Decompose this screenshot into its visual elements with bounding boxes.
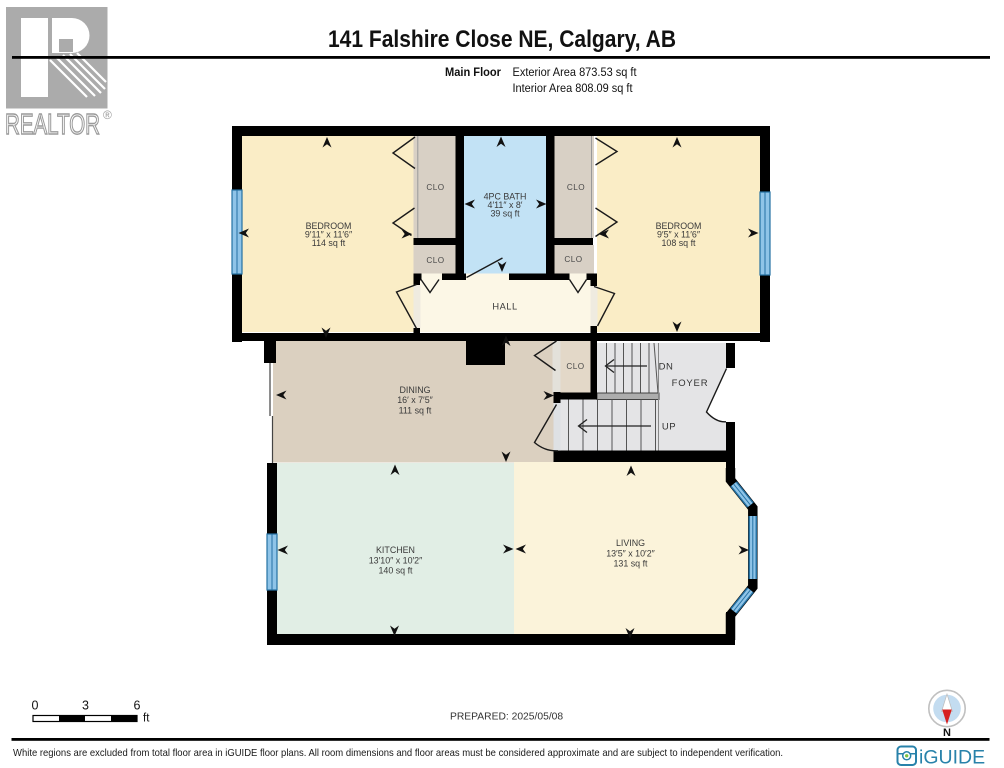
svg-text:KITCHEN: KITCHEN <box>376 545 415 555</box>
svg-text:White regions are excluded fro: White regions are excluded from total fl… <box>13 748 783 759</box>
svg-text:FOYER: FOYER <box>672 378 709 389</box>
svg-text:CLO: CLO <box>567 183 585 192</box>
svg-text:iGUIDE: iGUIDE <box>919 747 985 768</box>
svg-text:DINING: DINING <box>399 385 430 395</box>
svg-text:ft: ft <box>143 713 150 725</box>
svg-text:Main Floor: Main Floor <box>445 65 501 79</box>
svg-text:131 sq ft: 131 sq ft <box>613 559 648 569</box>
svg-text:CLO: CLO <box>426 183 444 192</box>
svg-text:140 sq ft: 140 sq ft <box>378 566 413 576</box>
svg-text:39 sq ft: 39 sq ft <box>490 209 520 219</box>
svg-text:UP: UP <box>662 422 676 433</box>
svg-text:CLO: CLO <box>426 256 444 265</box>
svg-text:N: N <box>943 727 951 739</box>
svg-text:Exterior Area 873.53 sq ft: Exterior Area 873.53 sq ft <box>513 65 638 79</box>
svg-text:114 sq ft: 114 sq ft <box>312 238 346 248</box>
svg-text:16′ x 7′5″: 16′ x 7′5″ <box>397 395 433 405</box>
svg-text:PREPARED: 2025/05/08: PREPARED: 2025/05/08 <box>450 712 563 723</box>
svg-text:®: ® <box>103 108 112 122</box>
svg-text:CLO: CLO <box>564 255 582 264</box>
svg-text:HALL: HALL <box>492 302 517 312</box>
svg-text:DN: DN <box>659 362 674 373</box>
svg-text:108 sq ft: 108 sq ft <box>661 238 696 248</box>
svg-text:CLO: CLO <box>566 362 584 371</box>
svg-text:0: 0 <box>32 699 39 713</box>
svg-text:6: 6 <box>134 699 141 713</box>
svg-text:141 Falshire Close NE, Calgary: 141 Falshire Close NE, Calgary, AB <box>328 26 676 53</box>
svg-text:REALTOR: REALTOR <box>5 109 100 141</box>
svg-text:111 sq ft: 111 sq ft <box>399 405 432 415</box>
svg-text:13′5″ x 10′2″: 13′5″ x 10′2″ <box>606 548 655 558</box>
svg-text:13′10″ x 10′2″: 13′10″ x 10′2″ <box>369 555 423 565</box>
svg-text:LIVING: LIVING <box>616 538 645 548</box>
svg-text:3: 3 <box>82 699 89 713</box>
svg-text:Interior Area 808.09 sq ft: Interior Area 808.09 sq ft <box>513 81 634 95</box>
